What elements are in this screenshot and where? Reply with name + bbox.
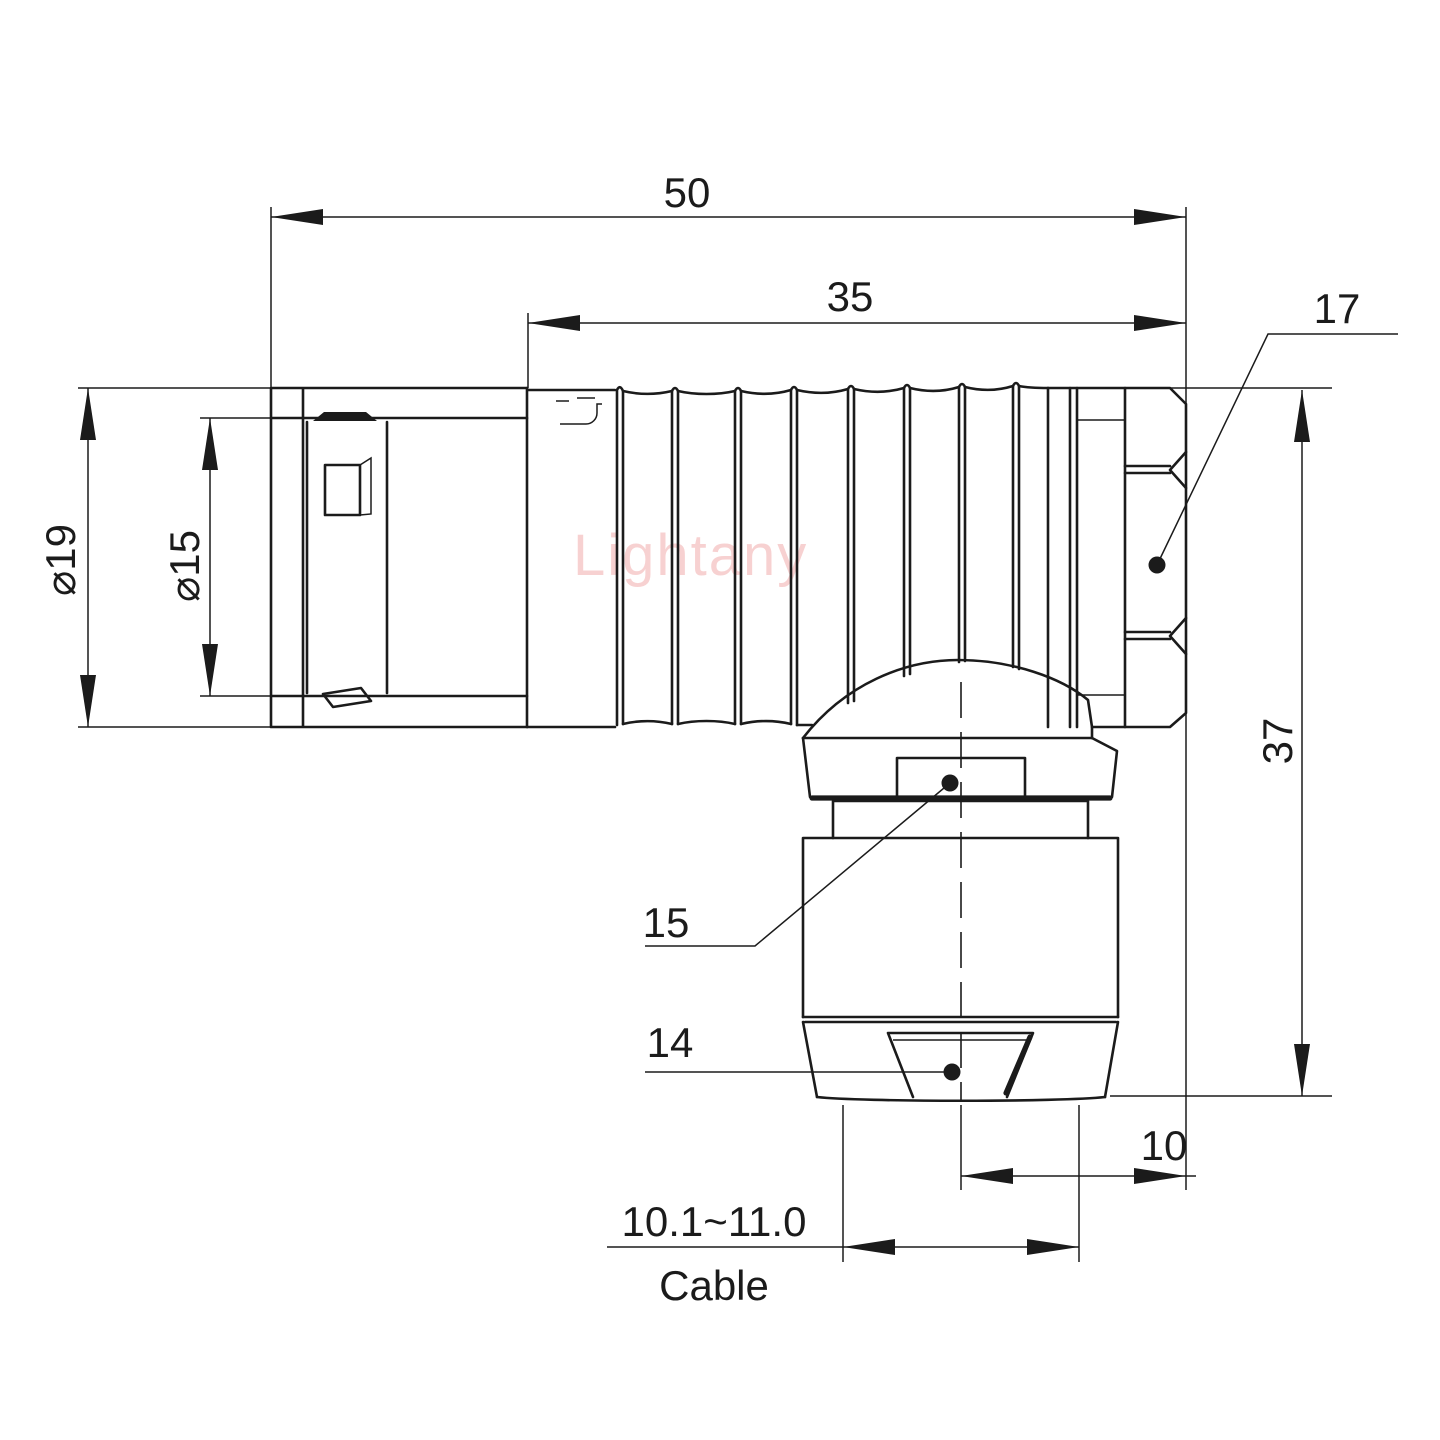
connector-drawing-canvas: Lightany — [0, 0, 1440, 1440]
dim-14-label: 14 — [647, 1019, 694, 1066]
latch-bump — [313, 412, 377, 421]
dimension-10: 10 — [843, 1105, 1196, 1262]
dim-d19-label: ⌀19 — [37, 524, 84, 596]
dim-d15-label: ⌀15 — [161, 530, 208, 602]
clamp-window-edge — [1006, 1037, 1030, 1093]
dim-35-label: 35 — [827, 273, 874, 320]
callout-15: 15 — [643, 783, 950, 946]
dim-15-label: 15 — [643, 899, 690, 946]
hex-coupling-nut — [1048, 388, 1186, 727]
dim-17-label: 17 — [1314, 285, 1361, 332]
cable-range-label: 10.1~11.0 — [622, 1198, 807, 1245]
sleeve-detail — [556, 398, 602, 424]
dim-50-label: 50 — [664, 169, 711, 216]
cable-word-label: Cable — [659, 1262, 769, 1309]
callout-dot-17 — [1149, 557, 1166, 574]
plug-front-body — [271, 388, 602, 727]
dim-10-label: 10 — [1141, 1122, 1188, 1169]
dimension-37: 37 — [1105, 388, 1332, 1096]
dimension-d15: ⌀15 — [161, 418, 271, 696]
callout-dot-14 — [944, 1064, 961, 1081]
dimension-35: 35 — [528, 273, 1186, 388]
watermark-text: Lightany — [573, 523, 808, 588]
bottom-tab — [323, 688, 371, 707]
dimension-d19: ⌀19 — [37, 388, 271, 727]
key-window — [325, 465, 360, 515]
dim-37-label: 37 — [1254, 718, 1301, 765]
technical-drawing-page: Lightany — [0, 0, 1440, 1440]
